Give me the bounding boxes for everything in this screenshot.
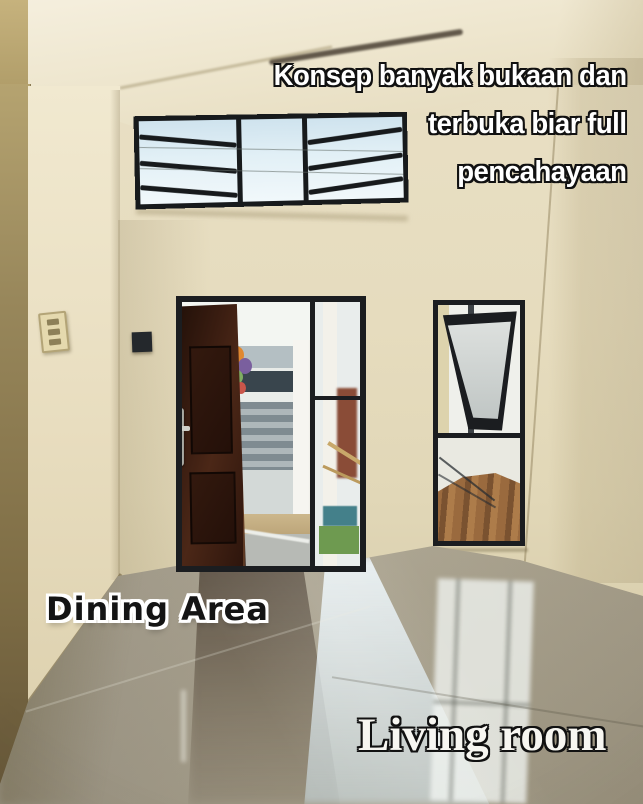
light-switch <box>38 311 70 354</box>
clerestory-slat <box>140 161 237 174</box>
clerestory-mullion-left <box>236 120 243 202</box>
caption-line-1: Konsep banyak bukaan dan <box>274 52 627 100</box>
living-room-label: Living room <box>358 708 607 762</box>
sidelight-bar <box>315 396 360 400</box>
interior-photo: Konsep banyak bukaan dan terbuka biar fu… <box>0 0 643 804</box>
casement-window <box>433 300 525 546</box>
left-side-wall <box>0 84 31 804</box>
door-handle-lever <box>182 426 190 431</box>
window-bottom-pane <box>438 438 520 541</box>
outside-teal-object <box>323 506 357 526</box>
entry-door-unit <box>176 296 366 572</box>
door-handle <box>182 408 184 466</box>
caption-line-2: terbuka biar full <box>274 100 627 148</box>
door-panel <box>189 346 233 455</box>
top-left-wall-edge <box>0 0 28 90</box>
doorway-view <box>182 302 360 566</box>
clerestory-slat <box>139 134 236 147</box>
door-leaf <box>182 304 246 566</box>
window-top-opening <box>438 305 520 433</box>
clerestory-slat <box>140 185 237 198</box>
caption-line-3: pencahayaan <box>274 148 627 196</box>
dining-area-label: Dining Area <box>46 590 269 628</box>
photo-caption: Konsep banyak bukaan dan terbuka biar fu… <box>274 52 627 196</box>
outside-grass <box>319 526 359 554</box>
outside-red-wall <box>337 388 357 478</box>
door-panel <box>189 472 236 545</box>
electrical-box <box>132 332 153 353</box>
sidelight-window <box>315 302 360 566</box>
